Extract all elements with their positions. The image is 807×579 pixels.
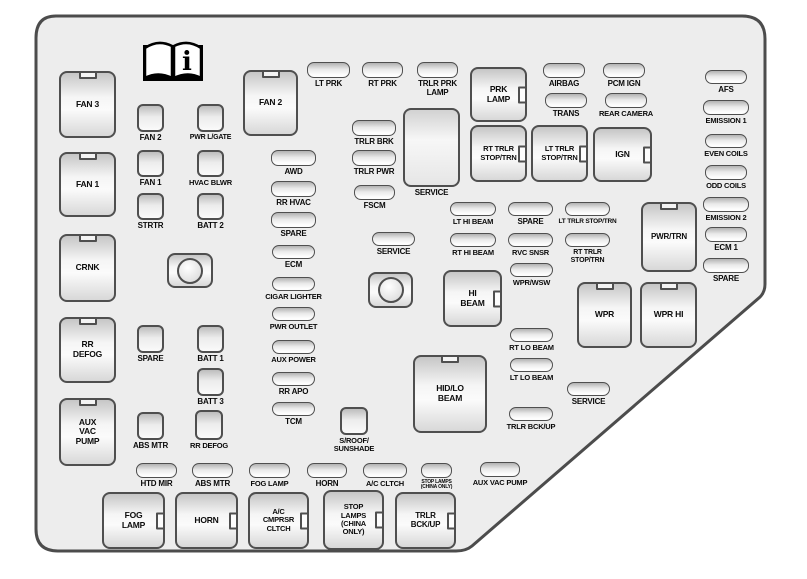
fuse-stop-lamps-china-only [421,463,452,478]
fuse-label: EMISSION 2 [706,214,747,222]
fuse-label: AUX POWER [271,356,315,364]
component-label: HI BEAM [460,289,484,308]
component-label: FAN 1 [76,180,99,190]
relay-horn: HORN [175,492,238,549]
fuse-label: HVAC BLWR [189,179,232,187]
component-label: FAN 3 [76,100,99,110]
fuse-aux-power [272,340,315,354]
tab-icon [518,145,527,162]
fuse-label: LT LO BEAM [510,374,553,382]
tab-icon [375,512,384,529]
fuse-label: FAN 1 [140,179,162,188]
fuse-service [567,382,610,396]
fuse-lt-trlr-stop-trn [565,202,610,216]
fuse-label: ECM 1 [714,244,737,253]
fuse-label: PCM IGN [608,80,641,89]
notch-icon [441,355,459,363]
fuse-label: LT HI BEAM [453,218,493,226]
fuse-batt-2 [197,193,224,220]
component-label: CRNK [76,263,100,273]
fuse-label: HTD MIR [141,480,173,489]
fuse-label: AIRBAG [549,80,579,89]
fuse-label: RT HI BEAM [452,249,494,257]
fuse-pwr-outlet [272,307,315,321]
fuse-label: WPR/WSW [513,279,550,287]
fuse-batt-3 [197,368,224,396]
fuse-label: BATT 2 [197,222,223,231]
relay-aux-vac-pump: AUX VAC PUMP [59,398,116,466]
fuse-label: BATT 1 [197,355,223,364]
notch-icon [79,317,97,325]
fuse-label: AUX VAC PUMP [473,479,528,487]
notch-icon [79,71,97,79]
fuse-trlr-prk-lamp [417,62,458,78]
relay-fog-lamp: FOG LAMP [102,492,165,549]
relay-fan-2: FAN 2 [243,70,298,136]
fuse-rr-defog [195,410,223,440]
fuse-tcm [272,402,315,416]
component-label: WPR [595,310,614,320]
notch-icon [596,282,614,290]
fuse-cigar-lighter [272,277,315,291]
round-socket-icon [378,277,404,303]
fuse-even-coils [705,134,747,148]
fuse-odd-coils [705,165,747,180]
relay-fan-1: FAN 1 [59,152,116,217]
fuse-label: STOP LAMPS (CHINA ONLY) [421,480,452,491]
fuse-label: TRANS [553,110,580,119]
fuse-label: EVEN COILS [704,150,747,158]
fuse-label: ODD COILS [706,182,746,190]
notch-icon [262,70,280,78]
fuse-label: REAR CAMERA [599,110,653,118]
fuse-aux-vac-pump [480,462,520,477]
fuse-label: SERVICE [415,189,449,198]
fuse-box-diagram: i FAN 3FAN 1CRNKRR DEFOGAUX VAC PUMPFAN … [0,0,807,579]
component-label: WPR HI [654,310,684,320]
relay-a-c-cmprsr-cltch: A/C CMPRSR CLTCH [248,492,309,549]
box-service [403,108,460,187]
relay-trlr-bck-up: TRLR BCK/UP [395,492,456,549]
tab-icon [493,290,502,307]
relay-round-socket [368,272,413,308]
notch-icon [79,234,97,242]
fuse-label: FAN 2 [140,134,162,143]
tab-icon [156,512,165,529]
tab-icon [579,145,588,162]
info-glyph: i [182,47,192,77]
fuse-label: AFS [718,86,733,95]
fuse-trans [545,93,587,108]
fuse-afs [705,70,747,84]
relay-pwr-trn: PWR/TRN [641,202,697,272]
fuse-label: ABS MTR [133,442,168,451]
fuse-spare [508,202,553,216]
component-label: RR DEFOG [73,340,102,359]
component-label: STOP LAMPS (CHINA ONLY) [341,503,366,537]
fuse-trlr-brk [352,120,396,136]
component-label: TRLR BCK/UP [411,512,440,530]
notch-icon [79,398,97,406]
fuse-abs-mtr [137,412,164,440]
relay-rt-trlr-stop-trn: RT TRLR STOP/TRN [470,125,527,182]
fuse-label: BATT 3 [197,398,223,407]
fuse-label: LT TRLR STOP/TRN [559,218,617,225]
notch-icon [660,202,678,210]
fuse-label: RT LO BEAM [509,344,554,352]
tab-icon [300,512,309,529]
fuse-label: LT PRK [315,80,342,89]
fuse-trlr-bck-up [509,407,553,421]
component-label: HID/LO BEAM [436,384,464,403]
fuse-emission-1 [703,100,749,115]
fuse-label: RVC SNSR [512,249,549,257]
fuse-fan-2 [137,104,164,132]
fuse-rvc-snsr [508,233,553,247]
fuse-label: ABS MTR [195,480,230,489]
relay-wpr: WPR [577,282,632,348]
fuse-airbag [543,63,585,78]
component-label: RT TRLR STOP/TRN [480,145,516,162]
fuse-label: TRLR PWR [354,168,395,177]
fuse-awd [271,150,316,166]
fuse-label: SPARE [518,218,544,227]
relay-lt-trlr-stop-trn: LT TRLR STOP/TRN [531,125,588,182]
fuse-label: TRLR BCK/UP [507,423,556,431]
fuse-label: RR APO [279,388,309,397]
component-label: HORN [194,516,218,526]
fuse-label: AWD [284,168,302,177]
fuse-label: SERVICE [572,398,606,407]
fuse-label: PWR L/GATE [190,134,231,142]
component-label: PRK LAMP [487,85,510,104]
relay-prk-lamp: PRK LAMP [470,67,527,122]
fuse-label: CIGAR LIGHTER [265,293,322,301]
tab-icon [518,86,527,103]
fuse-label: SPARE [713,275,739,284]
tab-icon [229,512,238,529]
fuse-strtr [137,193,164,220]
fuse-label: FSCM [364,202,386,211]
fuse-horn [307,463,347,478]
component-label: FAN 2 [259,98,282,108]
fuse-lt-hi-beam [450,202,496,216]
fuse-label: SPARE [281,230,307,239]
fuse-pcm-ign [603,63,645,78]
fuse-label: HORN [316,480,339,489]
fuse-fan-1 [137,150,164,177]
component-label: A/C CMPRSR CLTCH [263,508,294,533]
fuse-label: RT PRK [368,80,397,89]
fuse-abs-mtr [192,463,233,478]
fuse-rt-hi-beam [450,233,496,247]
relay-rr-defog: RR DEFOG [59,317,116,383]
fuse-wpr-wsw [510,263,553,277]
notch-icon [79,152,97,160]
fuse-label: SPARE [138,355,164,364]
component-label: FOG LAMP [122,511,145,530]
fuse-rt-trlr-stop-trn [565,233,610,247]
fuse-s-roof-sunshade [340,407,368,435]
tab-icon [447,512,456,529]
fuse-label: TCM [285,418,302,427]
fuse-label: RR DEFOG [190,442,228,450]
fuse-label: ECM [285,261,302,270]
fuse-emission-2 [703,197,749,212]
fuse-label: SERVICE [377,248,411,257]
component-label: PWR/TRN [651,233,687,242]
fuse-pwr-l-gate [197,104,224,132]
fuse-spare [703,258,749,273]
owner-manual-book-icon: i [139,38,207,86]
fuse-ecm [272,245,315,259]
fuse-rt-lo-beam [510,328,553,342]
fuse-ecm-1 [705,227,747,242]
fuse-hvac-blwr [197,150,224,177]
fuse-label: PWR OUTLET [270,323,318,331]
fuse-fog-lamp [249,463,290,478]
fuse-label: S/ROOF/ SUNSHADE [334,437,375,453]
fuse-label: RR HVAC [276,199,310,208]
fuse-a-c-cltch [363,463,407,478]
fuse-spare [137,325,164,353]
relay-wpr-hi: WPR HI [640,282,697,348]
component-label: AUX VAC PUMP [76,418,100,447]
relay-hid-lo-beam: HID/LO BEAM [413,355,487,433]
relay-crnk: CRNK [59,234,116,302]
fuse-service [372,232,415,246]
fuse-label: TRLR PRK LAMP [418,80,457,97]
fuse-spare [271,212,316,228]
fuse-rear-camera [605,93,647,108]
fuse-trlr-pwr [352,150,396,166]
relay-fan-3: FAN 3 [59,71,116,138]
fuse-htd-mir [136,463,177,478]
fuse-label: EMISSION 1 [706,117,747,125]
fuse-fscm [354,185,395,200]
fuse-lt-prk [307,62,350,78]
relay-hi-beam: HI BEAM [443,270,502,327]
relay-round-socket [167,253,213,288]
fuse-rt-prk [362,62,403,78]
fuse-label: STRTR [138,222,164,231]
component-label: IGN [615,150,630,160]
fuse-rr-apo [272,372,315,386]
fuse-label: FOG LAMP [251,480,289,488]
fuse-label: RT TRLR STOP/TRN [571,249,605,264]
notch-icon [660,282,678,290]
fuse-label: A/C CLTCH [366,480,404,488]
tab-icon [643,146,652,163]
relay-ign: IGN [593,127,652,182]
fuse-batt-1 [197,325,224,353]
component-label: LT TRLR STOP/TRN [541,145,577,162]
fuse-rr-hvac [271,181,316,197]
fuse-lt-lo-beam [510,358,553,372]
relay-stop-lamps-china-only: STOP LAMPS (CHINA ONLY) [323,490,384,550]
round-socket-icon [177,258,203,284]
fuse-label: TRLR BRK [354,138,393,147]
